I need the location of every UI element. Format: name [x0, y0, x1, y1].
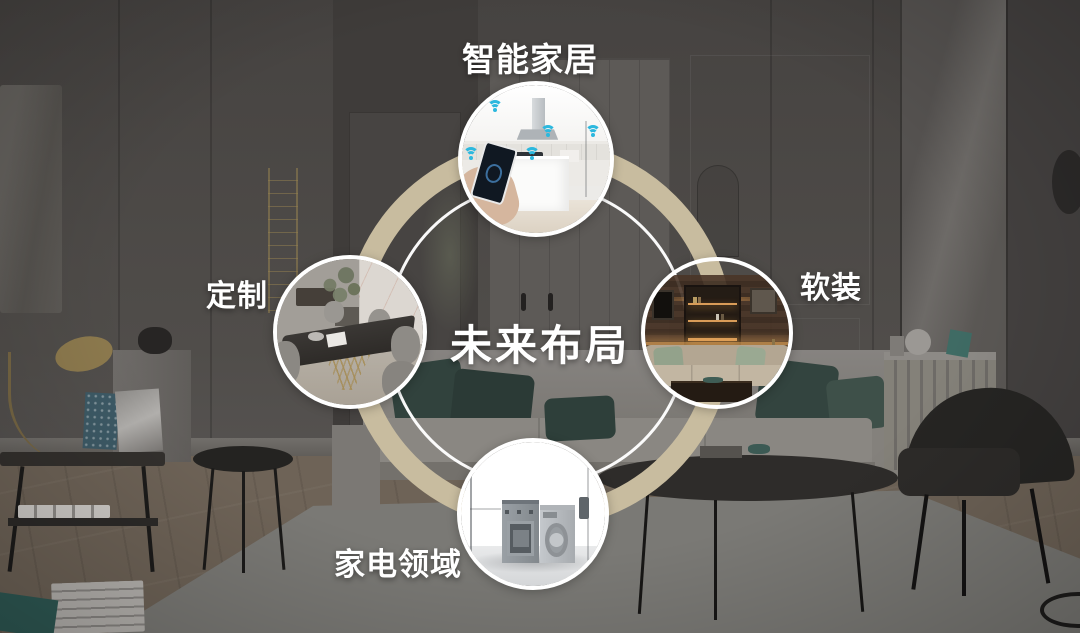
washer-control-panel: [543, 512, 557, 517]
oven-door: [507, 521, 534, 555]
app-dial: [483, 162, 504, 184]
oven-glass: [513, 530, 529, 548]
wifi-icon: [540, 125, 556, 138]
wall-shelving-unit: [684, 285, 742, 347]
table-dish: [308, 332, 324, 341]
node-soft-furnishing: [641, 257, 793, 409]
side-by-side-refrigerator: [575, 461, 601, 562]
dining-chair: [324, 301, 344, 323]
washer-door: [545, 523, 568, 557]
label-smart-home: 智能家居: [462, 33, 598, 81]
water-dispenser: [579, 497, 590, 519]
refrigerator: [470, 468, 502, 560]
wifi-icon: [585, 125, 601, 138]
label-custom: 定制: [206, 271, 268, 315]
book: [698, 297, 701, 303]
wifi-icon: [524, 147, 540, 160]
lit-shelf: [688, 320, 737, 322]
decor-dish: [703, 377, 723, 383]
wifi-icon: [463, 147, 479, 160]
dining-chair: [277, 341, 300, 385]
smart-kitchen-photo: [462, 85, 610, 233]
node-appliances: [457, 438, 609, 590]
label-soft-furnishing: 软装: [800, 263, 862, 307]
dining-chair: [382, 361, 420, 402]
infographic-poster: 智能家居 软装 家电领域 定制 未来布局: [0, 0, 1080, 633]
dining-chair: [391, 326, 420, 364]
node-smart-home: [458, 81, 614, 237]
picture-frame: [750, 288, 777, 314]
node-custom: [273, 255, 427, 409]
control-knobs: [505, 510, 536, 515]
wifi-icon: [487, 100, 503, 113]
label-appliances: 家电领域: [334, 539, 462, 584]
washing-machine: [540, 505, 575, 563]
living-room-photo: [645, 261, 789, 405]
picture-frame: [652, 290, 674, 320]
center-title: 未来布局: [450, 312, 630, 373]
lit-shelf: [688, 338, 737, 340]
book: [716, 314, 719, 320]
oven-range: [502, 500, 539, 563]
book: [721, 314, 724, 320]
dining-room-photo: [277, 259, 423, 405]
appliances-photo: [461, 442, 605, 586]
book: [693, 297, 696, 303]
coffee-table: [671, 381, 752, 403]
